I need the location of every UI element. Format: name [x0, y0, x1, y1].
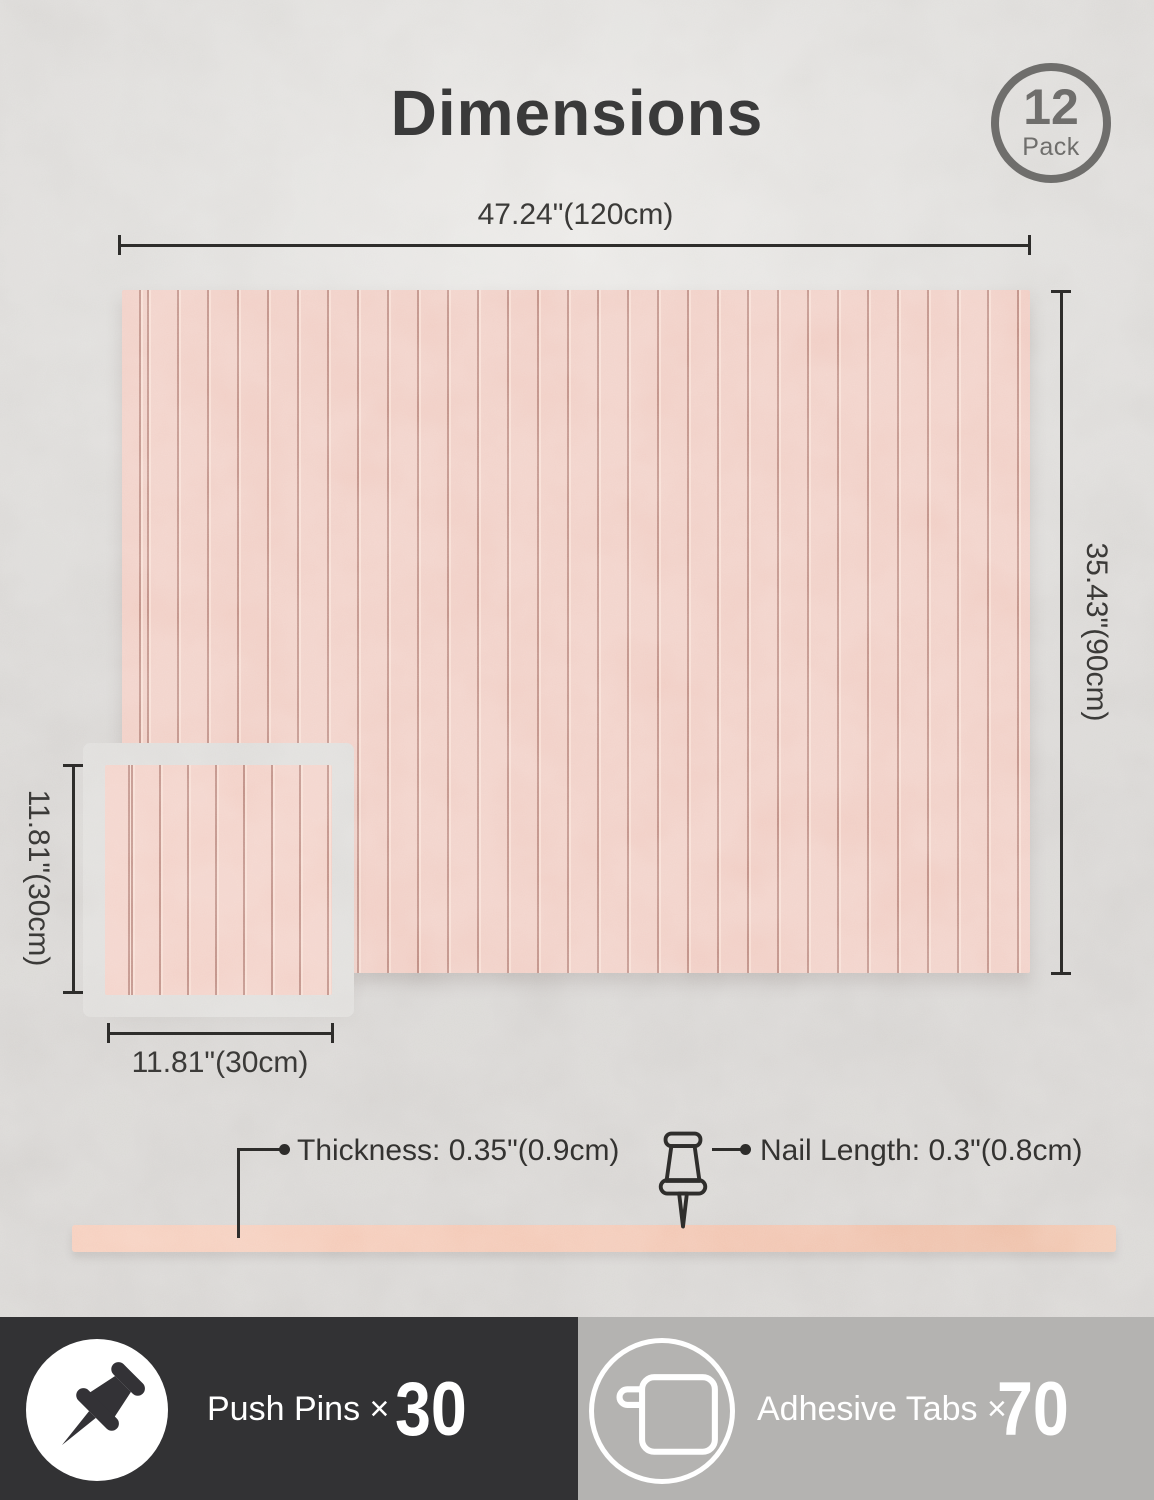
dim-tick	[63, 764, 83, 767]
adhesive-tabs-label: Adhesive Tabs ×	[757, 1390, 1007, 1429]
dim-tick	[331, 1023, 334, 1043]
large-panel-width-label: 47.24"(120cm)	[120, 198, 1031, 232]
thickness-leader-vline	[237, 1150, 240, 1238]
product-dimensions-image: Dimensions 12 Pack 47.24"(120cm) 35.43"(…	[0, 0, 1154, 1500]
thickness-leader-dot	[279, 1144, 290, 1155]
nail-length-label: Nail Length: 0.3"(0.8cm)	[760, 1134, 1082, 1168]
small-panel-side-label: 11.81"(30cm)	[21, 790, 55, 967]
dim-tick	[118, 235, 121, 255]
pack-badge-count: 12	[1023, 84, 1079, 132]
dim-line-right	[1060, 290, 1063, 974]
pushpin-outline-icon	[652, 1128, 714, 1232]
push-pins-label: Push Pins ×	[207, 1390, 389, 1429]
adhesive-tab-badge-circle	[589, 1338, 735, 1484]
dim-tick	[63, 991, 83, 994]
pack-badge: 12 Pack	[991, 63, 1111, 183]
dim-line-top	[118, 244, 1031, 247]
dim-tick	[107, 1023, 110, 1043]
nail-leader-hline	[712, 1148, 742, 1151]
small-felt-panel	[105, 765, 332, 995]
small-panel-bottom-label: 11.81"(30cm)	[107, 1046, 333, 1080]
push-pins-count: 30	[395, 1372, 467, 1448]
dim-tick	[1051, 972, 1071, 975]
pushpin-badge-circle	[26, 1339, 168, 1481]
dim-line-bottom	[107, 1032, 333, 1035]
large-panel-height-label: 35.43"(90cm)	[1079, 542, 1113, 721]
adhesive-tab-icon	[597, 1346, 727, 1476]
page-title: Dimensions	[0, 76, 1154, 150]
dim-tick	[1051, 290, 1071, 293]
nail-leader-dot	[740, 1144, 751, 1155]
thickness-leader-hline	[237, 1148, 281, 1151]
thickness-label: Thickness: 0.35"(0.9cm)	[297, 1134, 619, 1168]
dim-tick	[1028, 235, 1031, 255]
pack-badge-unit: Pack	[1022, 133, 1080, 162]
thickness-strip	[72, 1225, 1116, 1252]
dim-line-left	[72, 764, 75, 993]
adhesive-tabs-count: 70	[997, 1372, 1069, 1448]
